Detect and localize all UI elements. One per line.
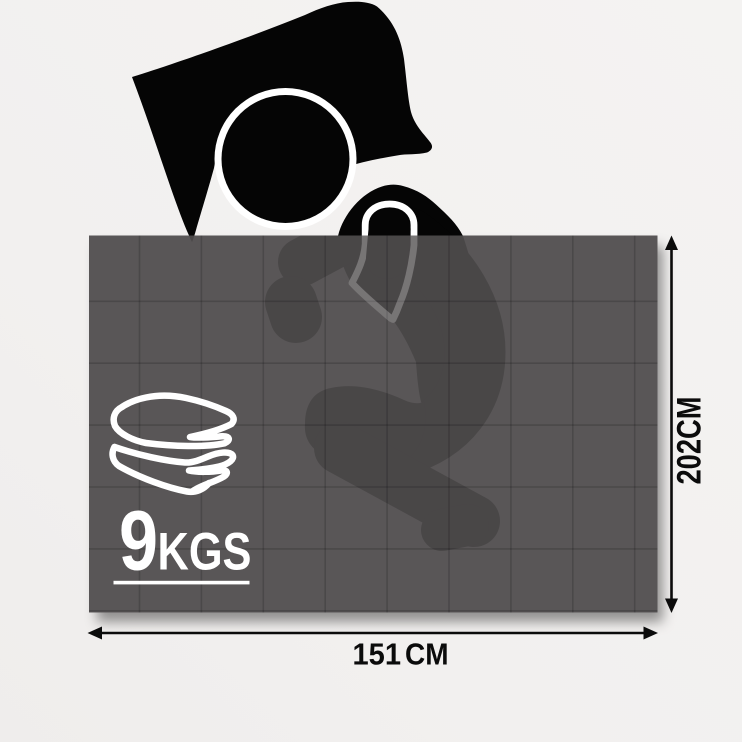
svg-text:151: 151 xyxy=(353,637,402,672)
svg-text:202CM: 202CM xyxy=(671,397,709,485)
svg-text:CM: CM xyxy=(405,637,449,672)
svg-text:9: 9 xyxy=(119,494,158,588)
svg-text:KGS: KGS xyxy=(158,523,252,582)
